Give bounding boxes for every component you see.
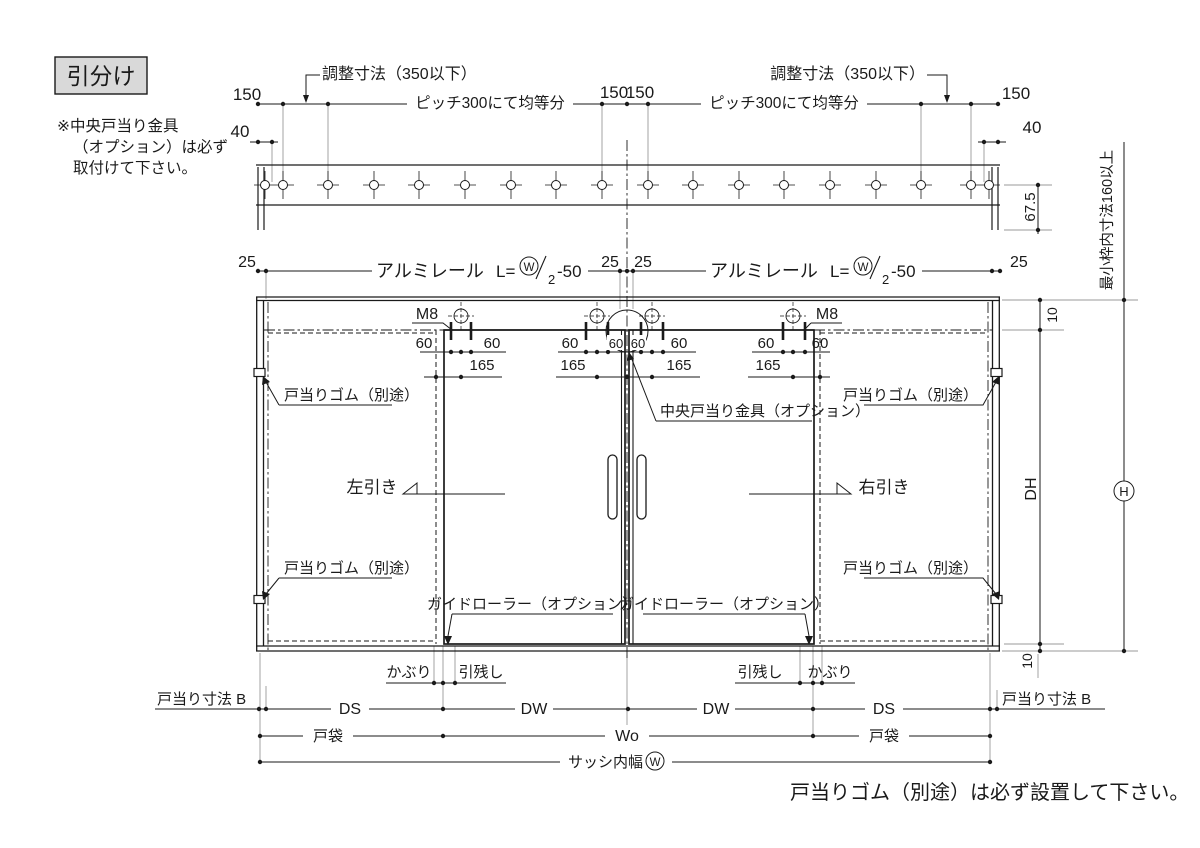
dim-dh: DH xyxy=(1023,477,1040,500)
hikinokoshi-label-right: 引残し xyxy=(737,664,782,681)
m8-label-left: M8 xyxy=(416,306,438,323)
sliding-door-diagram: 引分け ※中央戸当り金具 （オプション）は必ず 取付けて下さい。 150 40 … xyxy=(0,0,1200,848)
bottom-note: 戸当りゴム（別途）は必ず設置して下さい。 xyxy=(790,781,1189,804)
rubber-label-upper-right: 戸当りゴム（別途） xyxy=(843,386,978,404)
dim-25-center-left: 25 xyxy=(601,254,619,271)
alumi-rail-text: アルミレール xyxy=(710,261,818,281)
slide-left-triangle xyxy=(403,483,417,494)
rail-suffix: -50 xyxy=(557,262,582,281)
dim-40-right: 40 xyxy=(1023,118,1042,137)
dim-10-top: 10 xyxy=(1044,307,1060,323)
dim-67-5: 67.5 xyxy=(1022,192,1039,221)
dim-10-bottom: 10 xyxy=(1019,653,1035,669)
dim-60: 60 xyxy=(812,335,829,352)
dim-wo: Wo xyxy=(615,728,639,745)
dim-dw-right: DW xyxy=(703,701,731,718)
rail-w-symbol: W xyxy=(858,262,869,274)
page-title: 引分け xyxy=(67,63,136,89)
dim-150-top-right: 150 xyxy=(1002,84,1030,103)
center-stop-label: 中央戸当り金具（オプション） xyxy=(660,403,870,420)
rubber-label-upper-left: 戸当りゴム（別途） xyxy=(284,386,419,404)
hikinokoshi-label-left: 引残し xyxy=(458,664,503,681)
slide-right-triangle xyxy=(837,483,851,494)
rail-denominator: 2 xyxy=(548,272,555,287)
dim-165: 165 xyxy=(469,357,494,374)
sash-width-w-symbol: W xyxy=(650,757,661,769)
kaburi-label-left: かぶり xyxy=(386,664,431,681)
dim-dw-left: DW xyxy=(521,701,549,718)
guide-roller-label-right: ガイドローラー（オプション） xyxy=(619,596,829,613)
door-stop-b-left: 戸当り寸法 B xyxy=(157,691,246,708)
side-note-line1: ※中央戸当り金具 xyxy=(57,117,179,135)
dim-60: 60 xyxy=(671,335,688,352)
dim-h: H xyxy=(1119,484,1128,499)
dim-ds-left: DS xyxy=(339,701,361,718)
dim-165: 165 xyxy=(755,357,780,374)
door-stop-b-right: 戸当り寸法 B xyxy=(1002,691,1091,708)
adjust-dim-label-left: 調整寸法（350以下） xyxy=(322,65,477,83)
min-frame-label: 最小枠内寸法160以上 xyxy=(1099,150,1116,290)
kaburi-label-right: かぶり xyxy=(807,664,852,681)
slide-right-label: 右引き xyxy=(859,478,910,497)
dim-60: 60 xyxy=(758,335,775,352)
right-door-handle xyxy=(637,455,646,519)
rubber-stop-upper-right xyxy=(991,369,1002,377)
m8-label-right: M8 xyxy=(816,306,838,323)
pocket-label-right: 戸袋 xyxy=(869,728,899,745)
adjust-dim-label-right: 調整寸法（350以下） xyxy=(770,65,925,83)
dim-25-right: 25 xyxy=(1010,254,1028,271)
dim-25-left: 25 xyxy=(238,254,256,271)
rail-denominator: 2 xyxy=(882,272,889,287)
pitch-label-left: ピッチ300にて均等分 xyxy=(415,94,565,112)
pocket-label-left: 戸袋 xyxy=(313,728,343,745)
sash-width-label: サッシ内幅 xyxy=(568,754,643,771)
drawing-canvas: 引分け ※中央戸当り金具 （オプション）は必ず 取付けて下さい。 150 40 … xyxy=(0,0,1200,848)
dim-60: 60 xyxy=(609,336,623,351)
rail-length-eq: L= xyxy=(496,262,515,281)
side-note-line3: 取付けて下さい。 xyxy=(73,159,197,177)
rubber-stop-upper-left xyxy=(254,369,265,377)
rail-length-eq: L= xyxy=(830,262,849,281)
side-note-line2: （オプション）は必ず xyxy=(73,138,228,156)
dim-60: 60 xyxy=(416,335,433,352)
dim-150-center-right: 150 xyxy=(626,83,654,102)
dim-165: 165 xyxy=(666,357,691,374)
dim-60: 60 xyxy=(484,335,501,352)
dim-150-center-left: 150 xyxy=(600,83,628,102)
dim-60: 60 xyxy=(562,335,579,352)
left-door-handle xyxy=(608,455,617,519)
dim-40-left: 40 xyxy=(231,122,250,141)
dim-60: 60 xyxy=(631,336,645,351)
rail-suffix: -50 xyxy=(891,262,916,281)
alumi-rail-text: アルミレール xyxy=(376,261,484,281)
dim-165: 165 xyxy=(560,357,585,374)
rail-w-symbol: W xyxy=(524,262,535,274)
slide-left-label: 左引き xyxy=(347,478,398,497)
rubber-label-lower-right: 戸当りゴム（別途） xyxy=(843,559,978,577)
dim-150-top-left: 150 xyxy=(233,85,261,104)
rubber-label-lower-left: 戸当りゴム（別途） xyxy=(284,559,419,577)
guide-roller-label-left: ガイドローラー（オプション） xyxy=(427,596,637,613)
dim-25-center-right: 25 xyxy=(634,254,652,271)
dim-ds-right: DS xyxy=(873,701,895,718)
pitch-label-right: ピッチ300にて均等分 xyxy=(709,94,859,112)
